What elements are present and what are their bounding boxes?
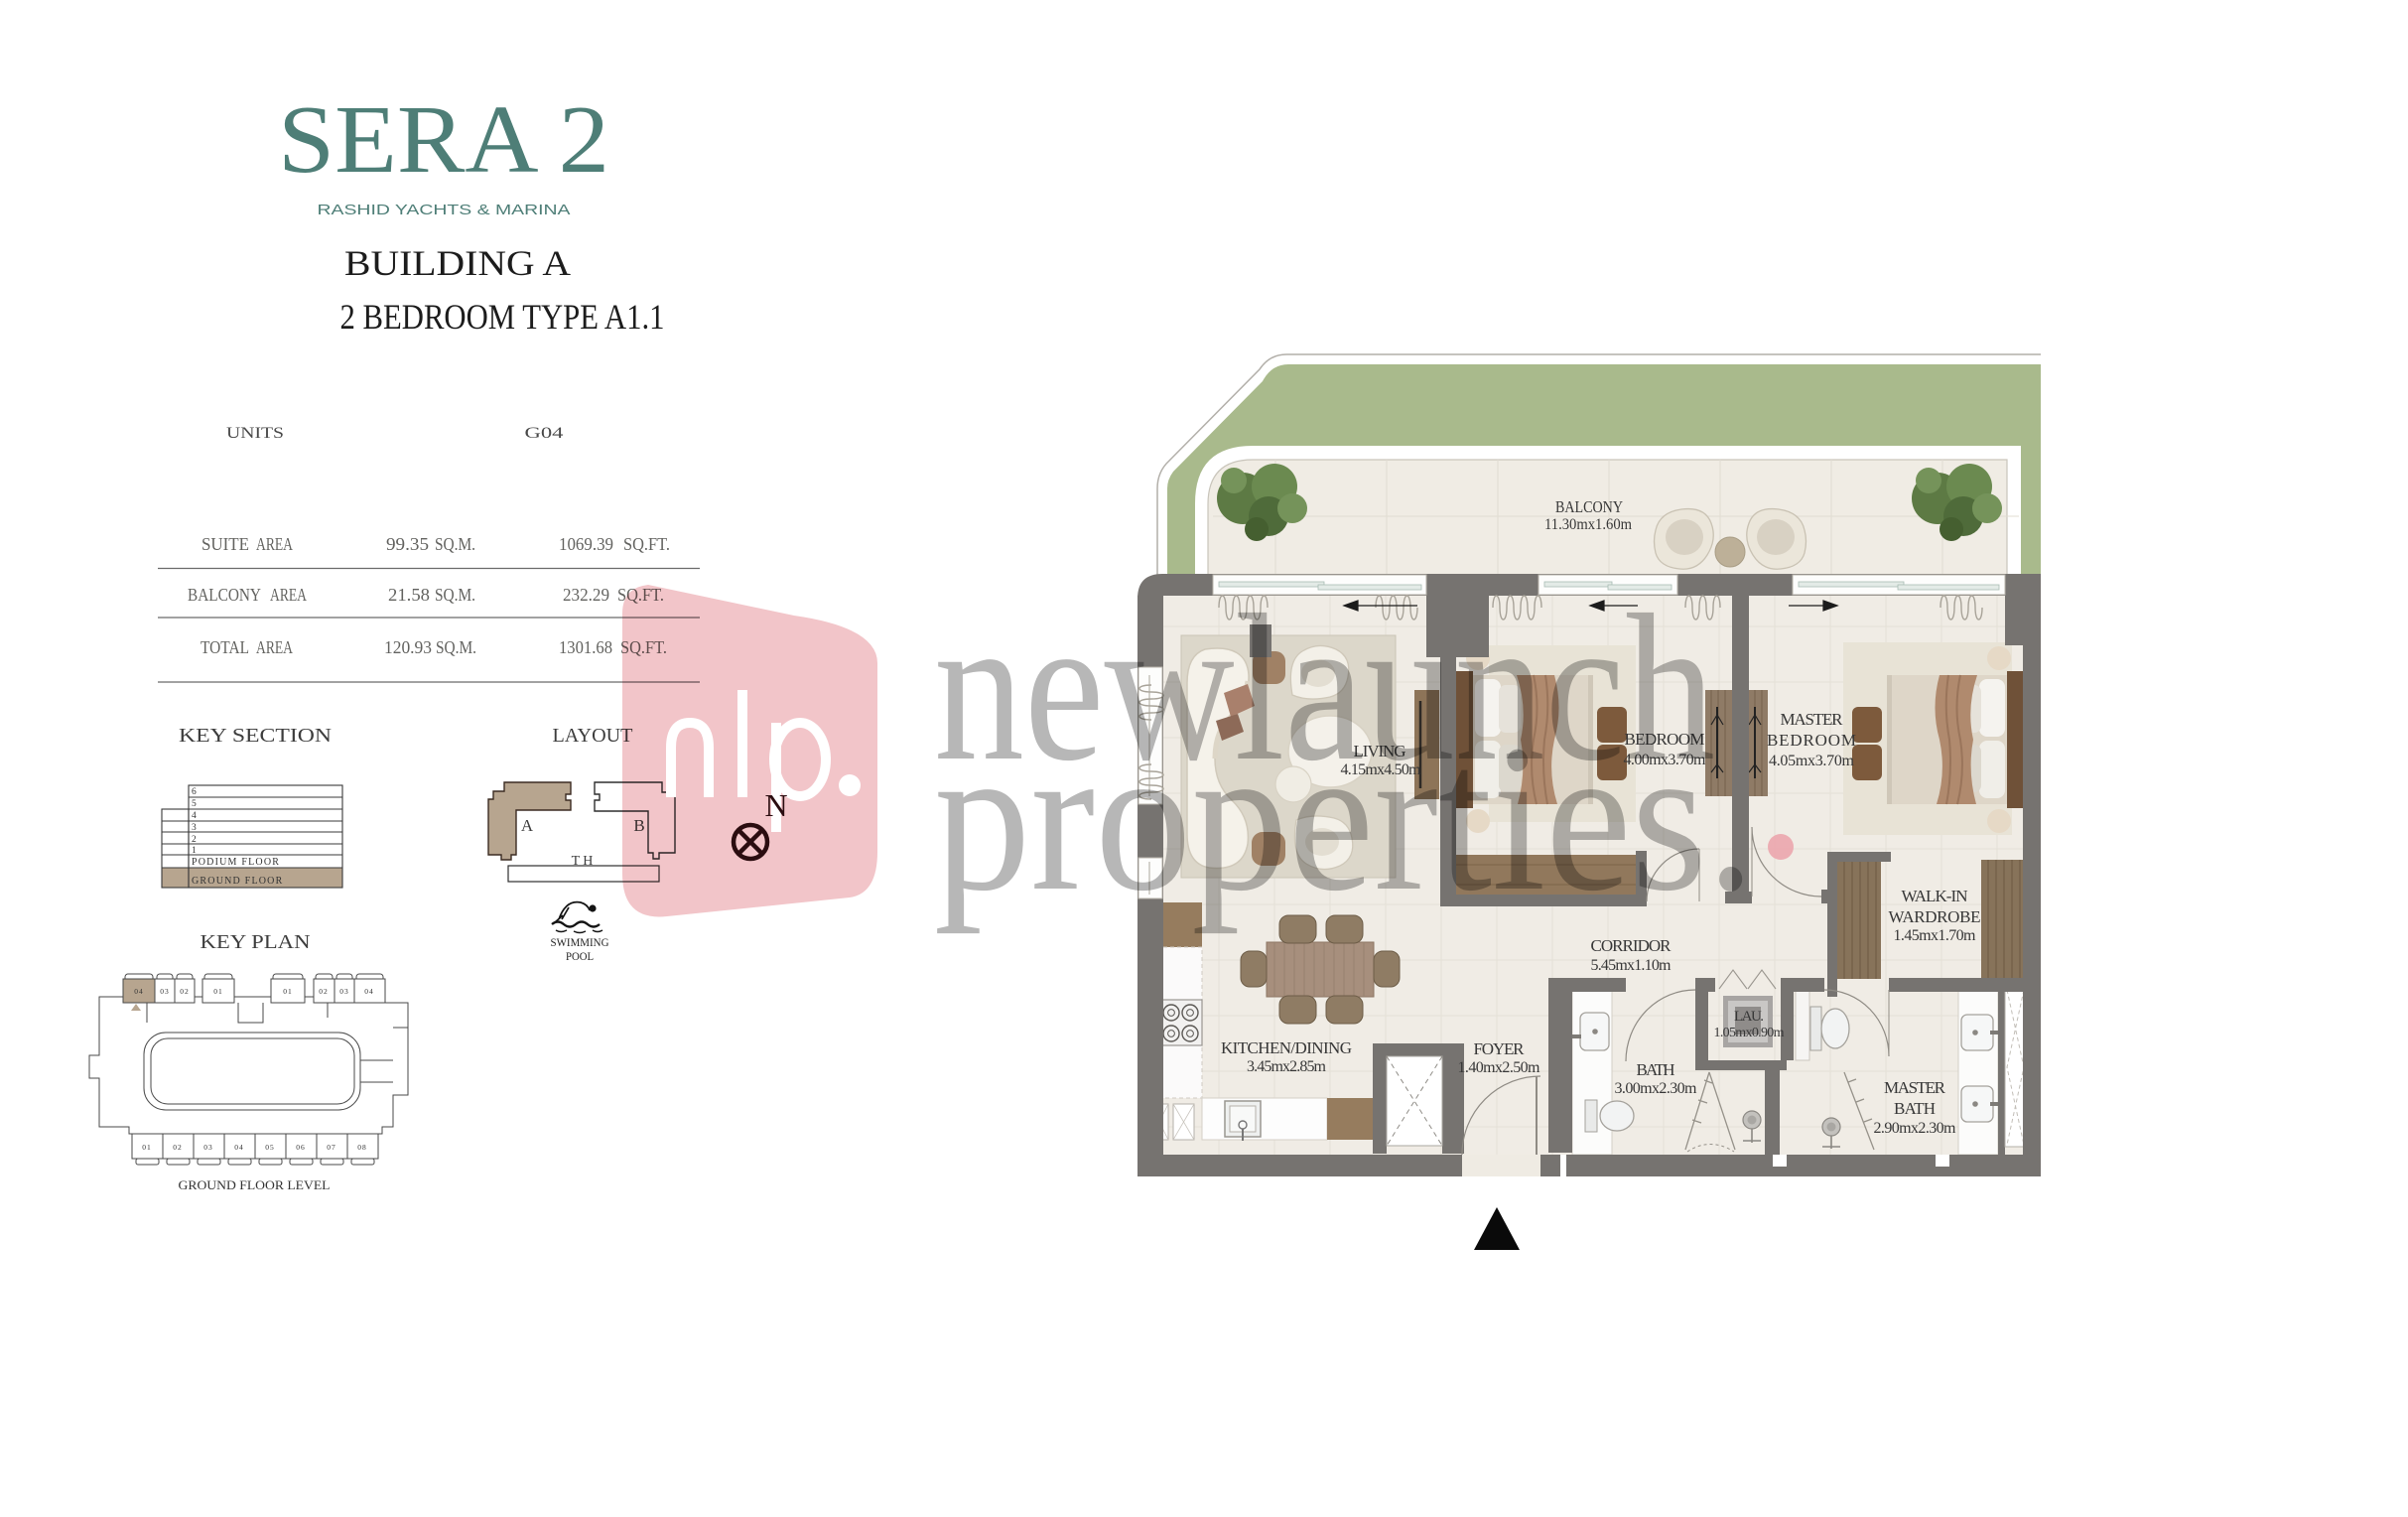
svg-text:MASTER: MASTER (1781, 710, 1844, 729)
svg-text:BALCONY: BALCONY (1555, 497, 1623, 516)
svg-text:PODIUM FLOOR: PODIUM FLOOR (192, 857, 280, 868)
svg-text:4: 4 (192, 811, 197, 821)
svg-text:TH: TH (572, 854, 597, 869)
svg-text:03: 03 (339, 987, 349, 996)
svg-text:04: 04 (234, 1143, 244, 1152)
svg-text:SWIMMING: SWIMMING (551, 935, 609, 949)
svg-text:02: 02 (173, 1143, 183, 1152)
svg-text:RASHID YACHTS & MARINA: RASHID YACHTS & MARINA (318, 202, 571, 218)
svg-text:FOYER: FOYER (1474, 1039, 1526, 1058)
svg-text:03: 03 (203, 1143, 213, 1152)
svg-text:1: 1 (192, 846, 197, 856)
svg-text:BEDROOM: BEDROOM (1767, 731, 1856, 750)
svg-text:SUITE: SUITE (201, 534, 249, 554)
svg-text:UNITS: UNITS (226, 425, 284, 442)
svg-text:GROUND FLOOR LEVEL: GROUND FLOOR LEVEL (179, 1177, 331, 1192)
svg-text:03: 03 (160, 987, 170, 996)
svg-text:BUILDING A: BUILDING A (344, 243, 571, 283)
svg-text:2 BEDROOM TYPE A1.1: 2 BEDROOM TYPE A1.1 (340, 297, 665, 337)
svg-text:1301.68: 1301.68 (559, 637, 612, 657)
svg-text:2: 2 (192, 835, 197, 845)
svg-text:BALCONY: BALCONY (188, 585, 261, 605)
svg-text:POOL: POOL (566, 949, 594, 963)
svg-text:11.30mx1.60m: 11.30mx1.60m (1544, 516, 1633, 533)
svg-text:AREA: AREA (270, 585, 307, 605)
svg-text:120.93: 120.93 (384, 637, 432, 657)
svg-text:21.58: 21.58 (388, 585, 430, 605)
svg-text:LAYOUT: LAYOUT (553, 725, 633, 747)
svg-text:G04: G04 (525, 425, 564, 442)
svg-text:MASTER: MASTER (1884, 1078, 1946, 1097)
svg-text:04: 04 (364, 987, 374, 996)
svg-text:WARDROBE: WARDROBE (1889, 907, 1981, 926)
svg-text:6: 6 (192, 787, 197, 797)
svg-text:N: N (764, 787, 787, 823)
svg-text:SERA 2: SERA 2 (278, 86, 609, 193)
svg-text:SQ.FT.: SQ.FT. (623, 534, 670, 554)
svg-text:KITCHEN/DINING: KITCHEN/DINING (1221, 1038, 1352, 1057)
svg-text:02: 02 (180, 987, 190, 996)
svg-text:3.45mx2.85m: 3.45mx2.85m (1247, 1058, 1327, 1075)
svg-text:07: 07 (327, 1143, 336, 1152)
svg-text:GROUND FLOOR: GROUND FLOOR (192, 876, 283, 887)
svg-text:08: 08 (357, 1143, 367, 1152)
svg-text:05: 05 (265, 1143, 275, 1152)
svg-text:SQ.M.: SQ.M. (435, 585, 475, 605)
svg-text:KEY SECTION: KEY SECTION (179, 725, 332, 747)
svg-text:TOTAL: TOTAL (201, 637, 249, 657)
svg-text:1.40mx2.50m: 1.40mx2.50m (1458, 1059, 1541, 1076)
svg-text:06: 06 (296, 1143, 306, 1152)
svg-text:SQ.M.: SQ.M. (435, 534, 475, 554)
svg-text:4.05mx3.70m: 4.05mx3.70m (1769, 753, 1855, 769)
svg-text:01: 01 (213, 987, 223, 996)
svg-text:232.29: 232.29 (563, 585, 609, 605)
svg-text:properties.: properties. (934, 701, 1755, 934)
svg-text:3.00mx2.30m: 3.00mx2.30m (1615, 1080, 1698, 1097)
svg-text:1.05mx0.90m: 1.05mx0.90m (1714, 1026, 1785, 1040)
svg-text:1.45mx1.70m: 1.45mx1.70m (1894, 927, 1977, 944)
svg-text:1069.39: 1069.39 (559, 534, 613, 554)
svg-text:2.90mx2.30m: 2.90mx2.30m (1874, 1120, 1957, 1137)
svg-text:BATH: BATH (1894, 1099, 1936, 1118)
svg-text:LAU.: LAU. (1734, 1009, 1764, 1025)
svg-text:A: A (521, 816, 534, 835)
svg-text:99.35: 99.35 (386, 534, 429, 554)
svg-text:WALK-IN: WALK-IN (1902, 887, 1968, 905)
svg-text:KEY PLAN: KEY PLAN (201, 931, 311, 953)
svg-text:01: 01 (142, 1143, 152, 1152)
svg-text:BATH: BATH (1637, 1060, 1675, 1079)
svg-text:SQ.M.: SQ.M. (436, 637, 476, 657)
svg-text:5.45mx1.10m: 5.45mx1.10m (1591, 957, 1672, 974)
svg-text:01: 01 (283, 987, 293, 996)
svg-text:5: 5 (192, 799, 197, 809)
svg-text:04: 04 (134, 987, 144, 996)
svg-text:CORRIDOR: CORRIDOR (1591, 936, 1672, 955)
svg-text:AREA: AREA (256, 637, 293, 657)
svg-text:AREA: AREA (256, 534, 293, 554)
svg-text:3: 3 (192, 823, 197, 833)
svg-text:02: 02 (319, 987, 329, 996)
